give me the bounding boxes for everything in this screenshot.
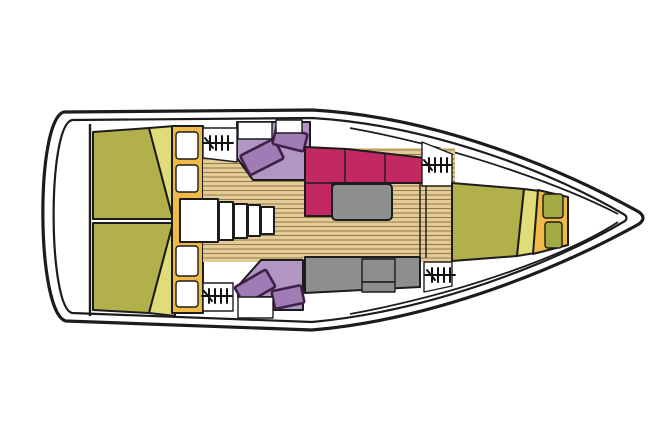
deck-plan-svg [0, 0, 667, 446]
deck-hatch [238, 122, 272, 139]
deck-hatch [276, 120, 302, 133]
seat-locker [238, 297, 273, 318]
saloon-table [332, 184, 392, 220]
bow-shelf [543, 194, 563, 218]
locker-door [176, 132, 198, 159]
step-3 [234, 204, 247, 238]
companionway-steps [180, 199, 274, 242]
galley-stove [362, 282, 395, 292]
galley-sink [362, 259, 395, 282]
locker-door [176, 246, 198, 276]
nav-seat-port [237, 120, 310, 180]
step-5 [261, 207, 274, 234]
locker-door [176, 165, 198, 192]
v-berth [452, 183, 524, 261]
step-2 [219, 202, 233, 240]
v-berth-cabin [452, 183, 568, 261]
galley [305, 257, 420, 293]
step-1 [180, 199, 218, 242]
locker-door [176, 281, 198, 307]
step-4 [248, 205, 260, 236]
bow-shelf [545, 222, 562, 248]
hanging-locker-panel [203, 128, 237, 162]
boat-plan-canvas [0, 0, 667, 446]
